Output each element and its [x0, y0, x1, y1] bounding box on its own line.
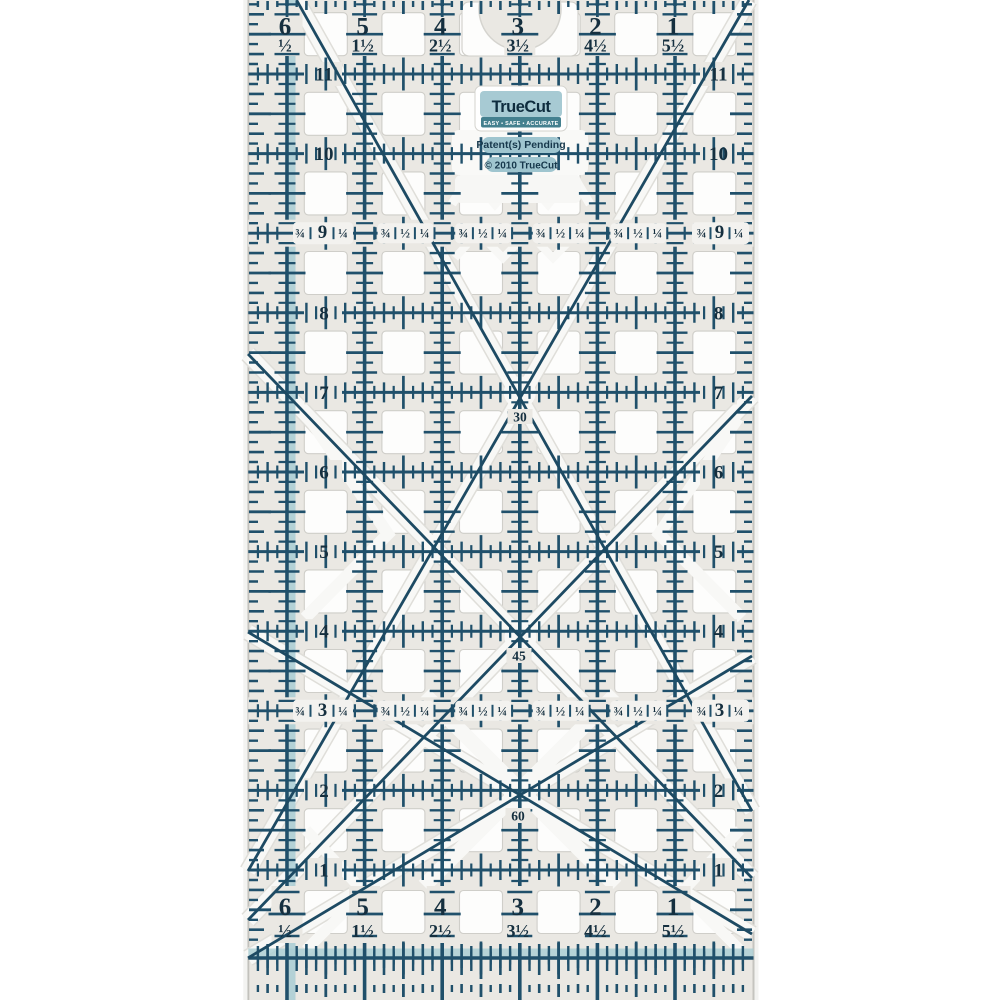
svg-text:¾: ¾ — [381, 703, 391, 718]
svg-text:1½: 1½ — [351, 921, 374, 941]
svg-text:½: ½ — [278, 921, 292, 941]
svg-text:11: 11 — [315, 65, 333, 86]
svg-text:5½: 5½ — [662, 921, 685, 941]
svg-text:½: ½ — [633, 226, 643, 241]
svg-text:1: 1 — [714, 861, 724, 882]
svg-text:4: 4 — [319, 622, 329, 643]
svg-text:2: 2 — [319, 781, 329, 802]
svg-text:6: 6 — [319, 463, 329, 484]
svg-text:4: 4 — [434, 894, 447, 921]
svg-text:½: ½ — [400, 226, 410, 241]
svg-text:11: 11 — [710, 65, 728, 86]
svg-text:3: 3 — [318, 700, 328, 721]
svg-text:¼: ¼ — [338, 703, 348, 718]
svg-text:6: 6 — [714, 463, 724, 484]
svg-text:¼: ¼ — [653, 703, 663, 718]
svg-text:5: 5 — [319, 542, 329, 563]
svg-text:2: 2 — [714, 781, 724, 802]
svg-text:¾: ¾ — [295, 703, 305, 718]
svg-text:60: 60 — [511, 809, 525, 824]
svg-text:½: ½ — [478, 226, 488, 241]
svg-text:10: 10 — [315, 144, 334, 165]
svg-text:2½: 2½ — [429, 921, 452, 941]
svg-text:¼: ¼ — [653, 226, 663, 241]
svg-text:¾: ¾ — [381, 226, 391, 241]
svg-text:½: ½ — [478, 703, 488, 718]
svg-text:3: 3 — [512, 894, 525, 921]
svg-text:2: 2 — [589, 894, 602, 921]
svg-text:¼: ¼ — [497, 703, 507, 718]
svg-text:¾: ¾ — [697, 703, 707, 718]
svg-text:© 2010 TrueCut: © 2010 TrueCut — [485, 161, 559, 172]
svg-text:¾: ¾ — [614, 226, 624, 241]
svg-text:3½: 3½ — [507, 921, 530, 941]
svg-text:¾: ¾ — [614, 703, 624, 718]
svg-text:½: ½ — [400, 703, 410, 718]
svg-text:8: 8 — [319, 303, 329, 324]
svg-text:¾: ¾ — [458, 226, 468, 241]
svg-text:7: 7 — [319, 383, 329, 404]
svg-text:¼: ¼ — [497, 226, 507, 241]
svg-text:¼: ¼ — [420, 226, 430, 241]
svg-text:45: 45 — [512, 649, 526, 664]
svg-text:½: ½ — [633, 703, 643, 718]
svg-text:½: ½ — [278, 36, 292, 56]
svg-text:9: 9 — [715, 222, 725, 243]
svg-text:1½: 1½ — [351, 36, 374, 56]
svg-text:TrueCut: TrueCut — [492, 98, 552, 116]
svg-text:¼: ¼ — [338, 226, 348, 241]
svg-text:½: ½ — [555, 703, 565, 718]
svg-text:4½: 4½ — [584, 36, 607, 56]
svg-text:4½: 4½ — [584, 921, 607, 941]
svg-text:5½: 5½ — [662, 36, 685, 56]
svg-text:2½: 2½ — [429, 36, 452, 56]
svg-text:8: 8 — [714, 303, 724, 324]
svg-text:3½: 3½ — [507, 36, 530, 56]
svg-text:6: 6 — [279, 894, 292, 921]
svg-text:3: 3 — [715, 700, 725, 721]
svg-text:EASY • SAFE • ACCURATE: EASY • SAFE • ACCURATE — [484, 121, 559, 127]
svg-text:¼: ¼ — [575, 703, 585, 718]
svg-text:¾: ¾ — [536, 703, 546, 718]
svg-text:¾: ¾ — [536, 226, 546, 241]
svg-text:5: 5 — [714, 542, 724, 563]
svg-text:10: 10 — [709, 144, 728, 165]
svg-text:30: 30 — [513, 410, 527, 425]
svg-text:¾: ¾ — [295, 226, 305, 241]
svg-text:¼: ¼ — [420, 703, 430, 718]
svg-text:1: 1 — [319, 861, 329, 882]
svg-text:¼: ¼ — [575, 226, 585, 241]
svg-text:7: 7 — [714, 383, 724, 404]
svg-text:¾: ¾ — [697, 226, 707, 241]
svg-text:4: 4 — [714, 622, 724, 643]
svg-text:¼: ¼ — [734, 703, 744, 718]
svg-text:9: 9 — [318, 222, 328, 243]
svg-text:¾: ¾ — [458, 703, 468, 718]
svg-text:½: ½ — [555, 226, 565, 241]
svg-text:1: 1 — [667, 894, 680, 921]
svg-text:¼: ¼ — [734, 226, 744, 241]
svg-text:Patent(s) Pending: Patent(s) Pending — [476, 139, 565, 151]
svg-text:5: 5 — [356, 894, 369, 921]
